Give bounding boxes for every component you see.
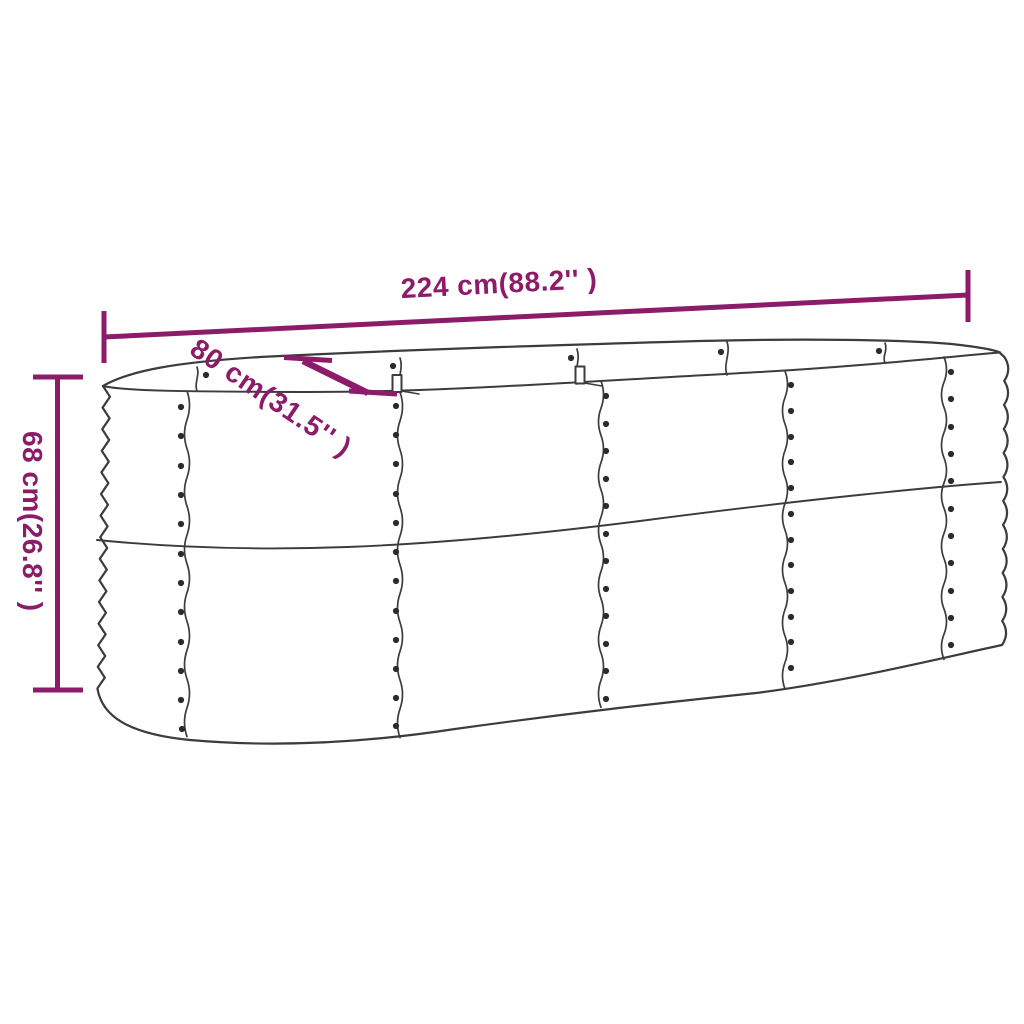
planter-line-drawing <box>0 0 1024 1024</box>
seam-line <box>398 392 403 738</box>
rim-joint <box>726 342 728 375</box>
product-dimension-image: 224 cm(88.2'' ) 80 cm(31.5'' ) 68 cm(26.… <box>0 0 1024 1024</box>
seam-line <box>942 357 947 659</box>
seam-line <box>599 381 604 707</box>
mounting-clip <box>576 367 603 387</box>
mounting-clip <box>393 375 420 394</box>
seam-line <box>185 391 190 737</box>
width-dimension-line <box>284 358 397 395</box>
rim-joint <box>884 343 886 363</box>
width-dimension-cap-right <box>349 391 397 394</box>
width-dimension-main <box>303 361 368 393</box>
seam-line <box>783 371 788 689</box>
length-dimension-main <box>104 295 968 337</box>
height-dimension-label: 68 cm(26.8'' ) <box>18 431 46 612</box>
width-dimension-cap-left <box>284 358 332 361</box>
horizontal-seam-line <box>97 482 1001 548</box>
rim-joint <box>196 367 198 391</box>
